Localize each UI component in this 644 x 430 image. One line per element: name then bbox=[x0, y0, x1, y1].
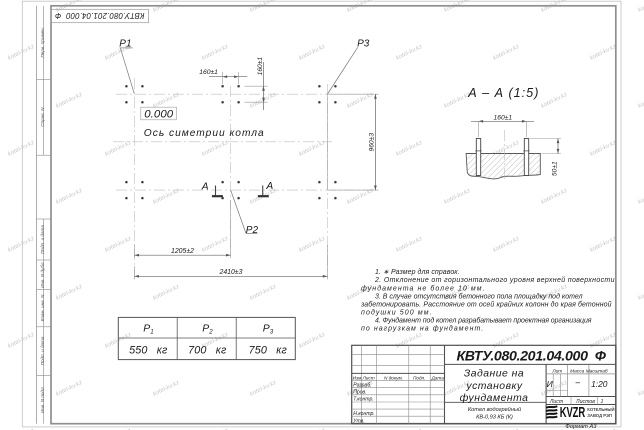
svg-text:установку: установку bbox=[465, 381, 523, 392]
svg-text:1: 1 bbox=[601, 399, 604, 405]
svg-text:Котел водогрейный: Котел водогрейный bbox=[468, 406, 521, 413]
svg-text:Подп. и дата: Подп. и дата bbox=[40, 225, 45, 254]
svg-text:А: А bbox=[201, 181, 209, 192]
svg-text:Инв. N дубл.: Инв. N дубл. bbox=[40, 261, 45, 288]
svg-text:Справ. N: Справ. N bbox=[40, 107, 45, 127]
svg-text:фундамента: фундамента bbox=[460, 392, 529, 404]
svg-text:И: И bbox=[547, 379, 554, 389]
svg-text:Масса: Масса bbox=[570, 369, 585, 375]
svg-text:А: А bbox=[265, 181, 273, 192]
svg-text:2. Отклонение от горизонтально: 2. Отклонение от горизонтального уровня … bbox=[374, 276, 615, 284]
svg-text:Р3: Р3 bbox=[357, 39, 370, 50]
svg-text:1. ∗ Размер для справок.: 1. ∗ Размер для справок. bbox=[375, 268, 460, 276]
svg-text:КОТЕЛЬНЫЙ: КОТЕЛЬНЫЙ bbox=[587, 407, 614, 412]
svg-text:КВТУ.080.201.04.000 Ф: КВТУ.080.201.04.000 Ф bbox=[55, 11, 145, 20]
svg-text:Подп. и дата: Подп. и дата bbox=[40, 336, 45, 365]
svg-text:КВ-0,93 КБ (К): КВ-0,93 КБ (К) bbox=[476, 414, 513, 420]
svg-text:по нагрузкам на фундамент.: по нагрузкам на фундамент. bbox=[361, 325, 484, 333]
svg-text:Утв.: Утв. bbox=[353, 418, 365, 424]
svg-text:фундамента не более 10 мм.: фундамента не более 10 мм. bbox=[361, 284, 486, 292]
svg-text:Т.контр.: Т.контр. bbox=[353, 397, 374, 403]
svg-text:1:20: 1:20 bbox=[591, 379, 608, 389]
svg-text:Лит: Лит bbox=[551, 369, 562, 375]
svg-text:960±3: 960±3 bbox=[369, 133, 376, 152]
svg-text:Перв. примен.: Перв. примен. bbox=[40, 27, 45, 58]
svg-text:700 кг: 700 кг bbox=[188, 345, 227, 357]
svg-text:Формат А3: Формат А3 bbox=[565, 424, 597, 430]
svg-text:Р2: Р2 bbox=[246, 225, 259, 236]
svg-text:550 кг: 550 кг bbox=[129, 345, 168, 357]
svg-text:Пров.: Пров. bbox=[353, 389, 366, 395]
svg-text:Подп.: Подп. bbox=[413, 375, 425, 380]
svg-text:КВТУ.080.201.04.000 Ф: КВТУ.080.201.04.000 Ф bbox=[456, 349, 606, 365]
svg-text:160±1: 160±1 bbox=[494, 115, 513, 122]
svg-text:2410±3: 2410±3 bbox=[219, 269, 243, 276]
svg-text:3. В случае отсутствия бетонно: 3. В случае отсутствия бетонного пола пл… bbox=[375, 292, 583, 300]
svg-text:Изм.Лист: Изм.Лист bbox=[353, 375, 375, 380]
svg-text:1205±2: 1205±2 bbox=[171, 248, 194, 255]
svg-text:0.000: 0.000 bbox=[144, 109, 174, 121]
svg-text:Дата: Дата bbox=[431, 375, 445, 380]
svg-text:160±1: 160±1 bbox=[257, 57, 264, 76]
svg-text:Ось симетрии котла: Ось симетрии котла bbox=[144, 128, 265, 139]
svg-text:N докум.: N докум. bbox=[384, 375, 403, 380]
svg-text:Масштаб: Масштаб bbox=[586, 369, 608, 375]
svg-text:4. Фундамент под котел разраба: 4. Фундамент под котел разрабатывает про… bbox=[375, 317, 592, 325]
svg-text:Инв. N подл.: Инв. N подл. bbox=[40, 386, 45, 413]
svg-text:Задание на: Задание на bbox=[464, 368, 524, 379]
svg-text:–: – bbox=[575, 378, 581, 387]
svg-text:Разраб.: Разраб. bbox=[353, 382, 371, 388]
svg-text:160±1: 160±1 bbox=[199, 69, 218, 76]
svg-text:ЗАВОД РЭП: ЗАВОД РЭП bbox=[587, 413, 612, 418]
svg-text:А – А (1:5): А – А (1:5) bbox=[467, 86, 539, 100]
svg-text:забетонировать. Расстояние от: забетонировать. Расстояние от осей крайн… bbox=[360, 300, 612, 308]
svg-text:KVZR: KVZR bbox=[560, 404, 585, 421]
svg-text:подушки 500 мм.: подушки 500 мм. bbox=[361, 308, 433, 316]
svg-text:750 кг: 750 кг bbox=[249, 345, 288, 357]
svg-text:Взам. инв. N: Взам. инв. N bbox=[40, 294, 45, 321]
svg-text:Н.контр.: Н.контр. bbox=[353, 411, 375, 417]
svg-text:50±1: 50±1 bbox=[551, 161, 558, 176]
